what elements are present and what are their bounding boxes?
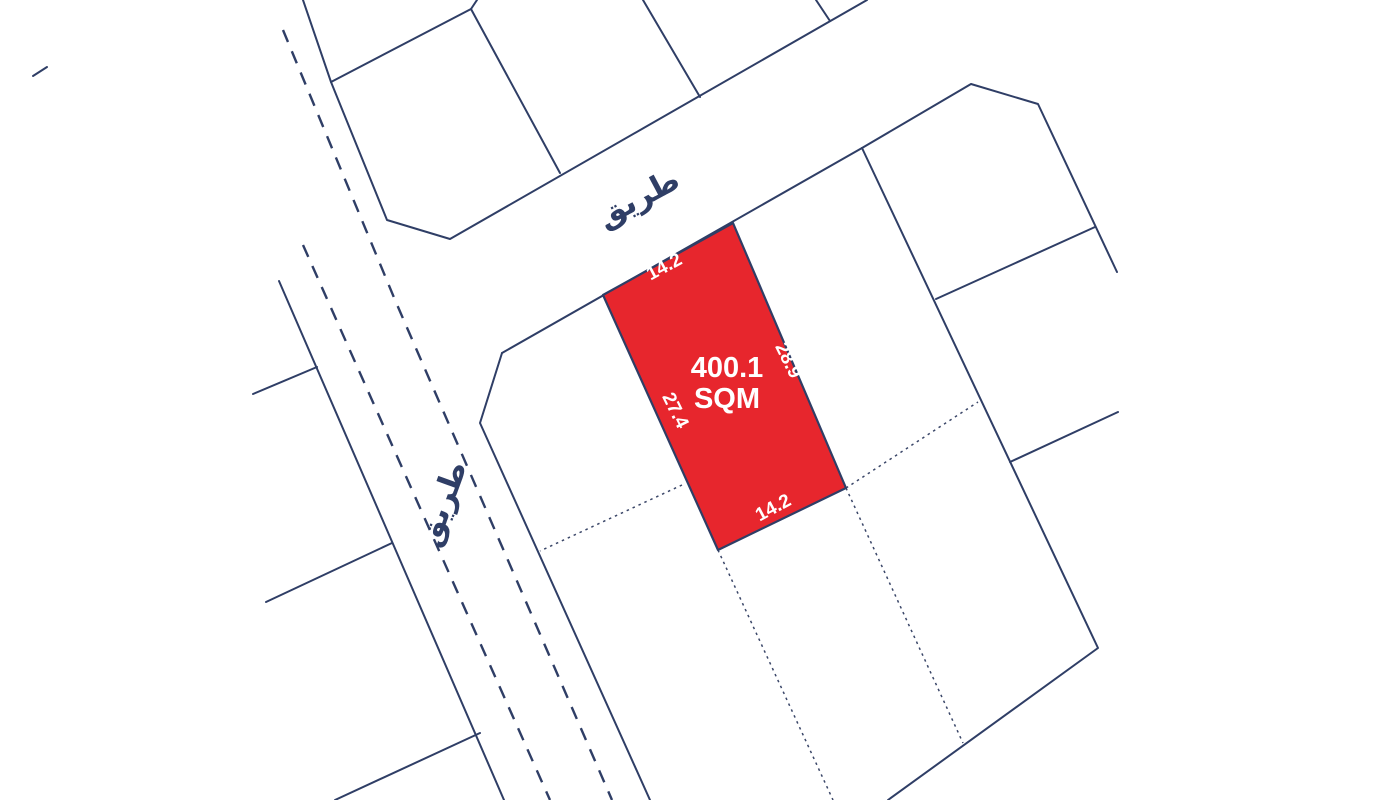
parcel-boundary-line <box>643 0 700 97</box>
parcel-boundary-line <box>33 67 47 76</box>
road-dashed-lines-layer <box>283 30 612 800</box>
parcel-divider-dotted <box>846 488 963 743</box>
road-name-label: طريق <box>411 456 475 551</box>
parcel-divider-dotted <box>540 485 682 551</box>
parcel-area-unit: SQM <box>694 383 760 415</box>
parcel-boundaries-layer <box>33 0 1118 800</box>
parcel-boundary-line <box>862 148 1098 800</box>
parcel-divider-dotted <box>846 402 978 488</box>
parcel-boundary-line <box>253 367 317 394</box>
parcel-area-label: 400.1SQM <box>691 352 764 415</box>
road-name-label: طريق <box>591 162 686 235</box>
cadastral-map-page: 14.228.927.414.2طريقطريق400.1SQM <box>0 0 1400 800</box>
road-centerline-dashed <box>283 30 612 800</box>
parcel-divider-dotted <box>718 550 833 800</box>
parcel-boundary-line <box>816 0 830 21</box>
parcel-boundary-line <box>279 281 504 800</box>
parcel-boundary-line <box>1010 412 1118 462</box>
parcel-boundary-line <box>936 227 1095 299</box>
parcel-boundary-line <box>266 543 392 602</box>
parcel-boundary-line <box>331 0 477 82</box>
parcel-boundary-line <box>335 733 480 800</box>
cadastral-map: 14.228.927.414.2طريقطريق400.1SQM <box>0 0 1400 800</box>
parcel-boundary-line <box>471 9 560 173</box>
parcel-boundary-line <box>303 0 867 239</box>
parcel-boundary-line <box>862 84 1117 272</box>
parcel-area-value: 400.1 <box>691 352 764 384</box>
parcel-boundary-line <box>480 353 650 800</box>
